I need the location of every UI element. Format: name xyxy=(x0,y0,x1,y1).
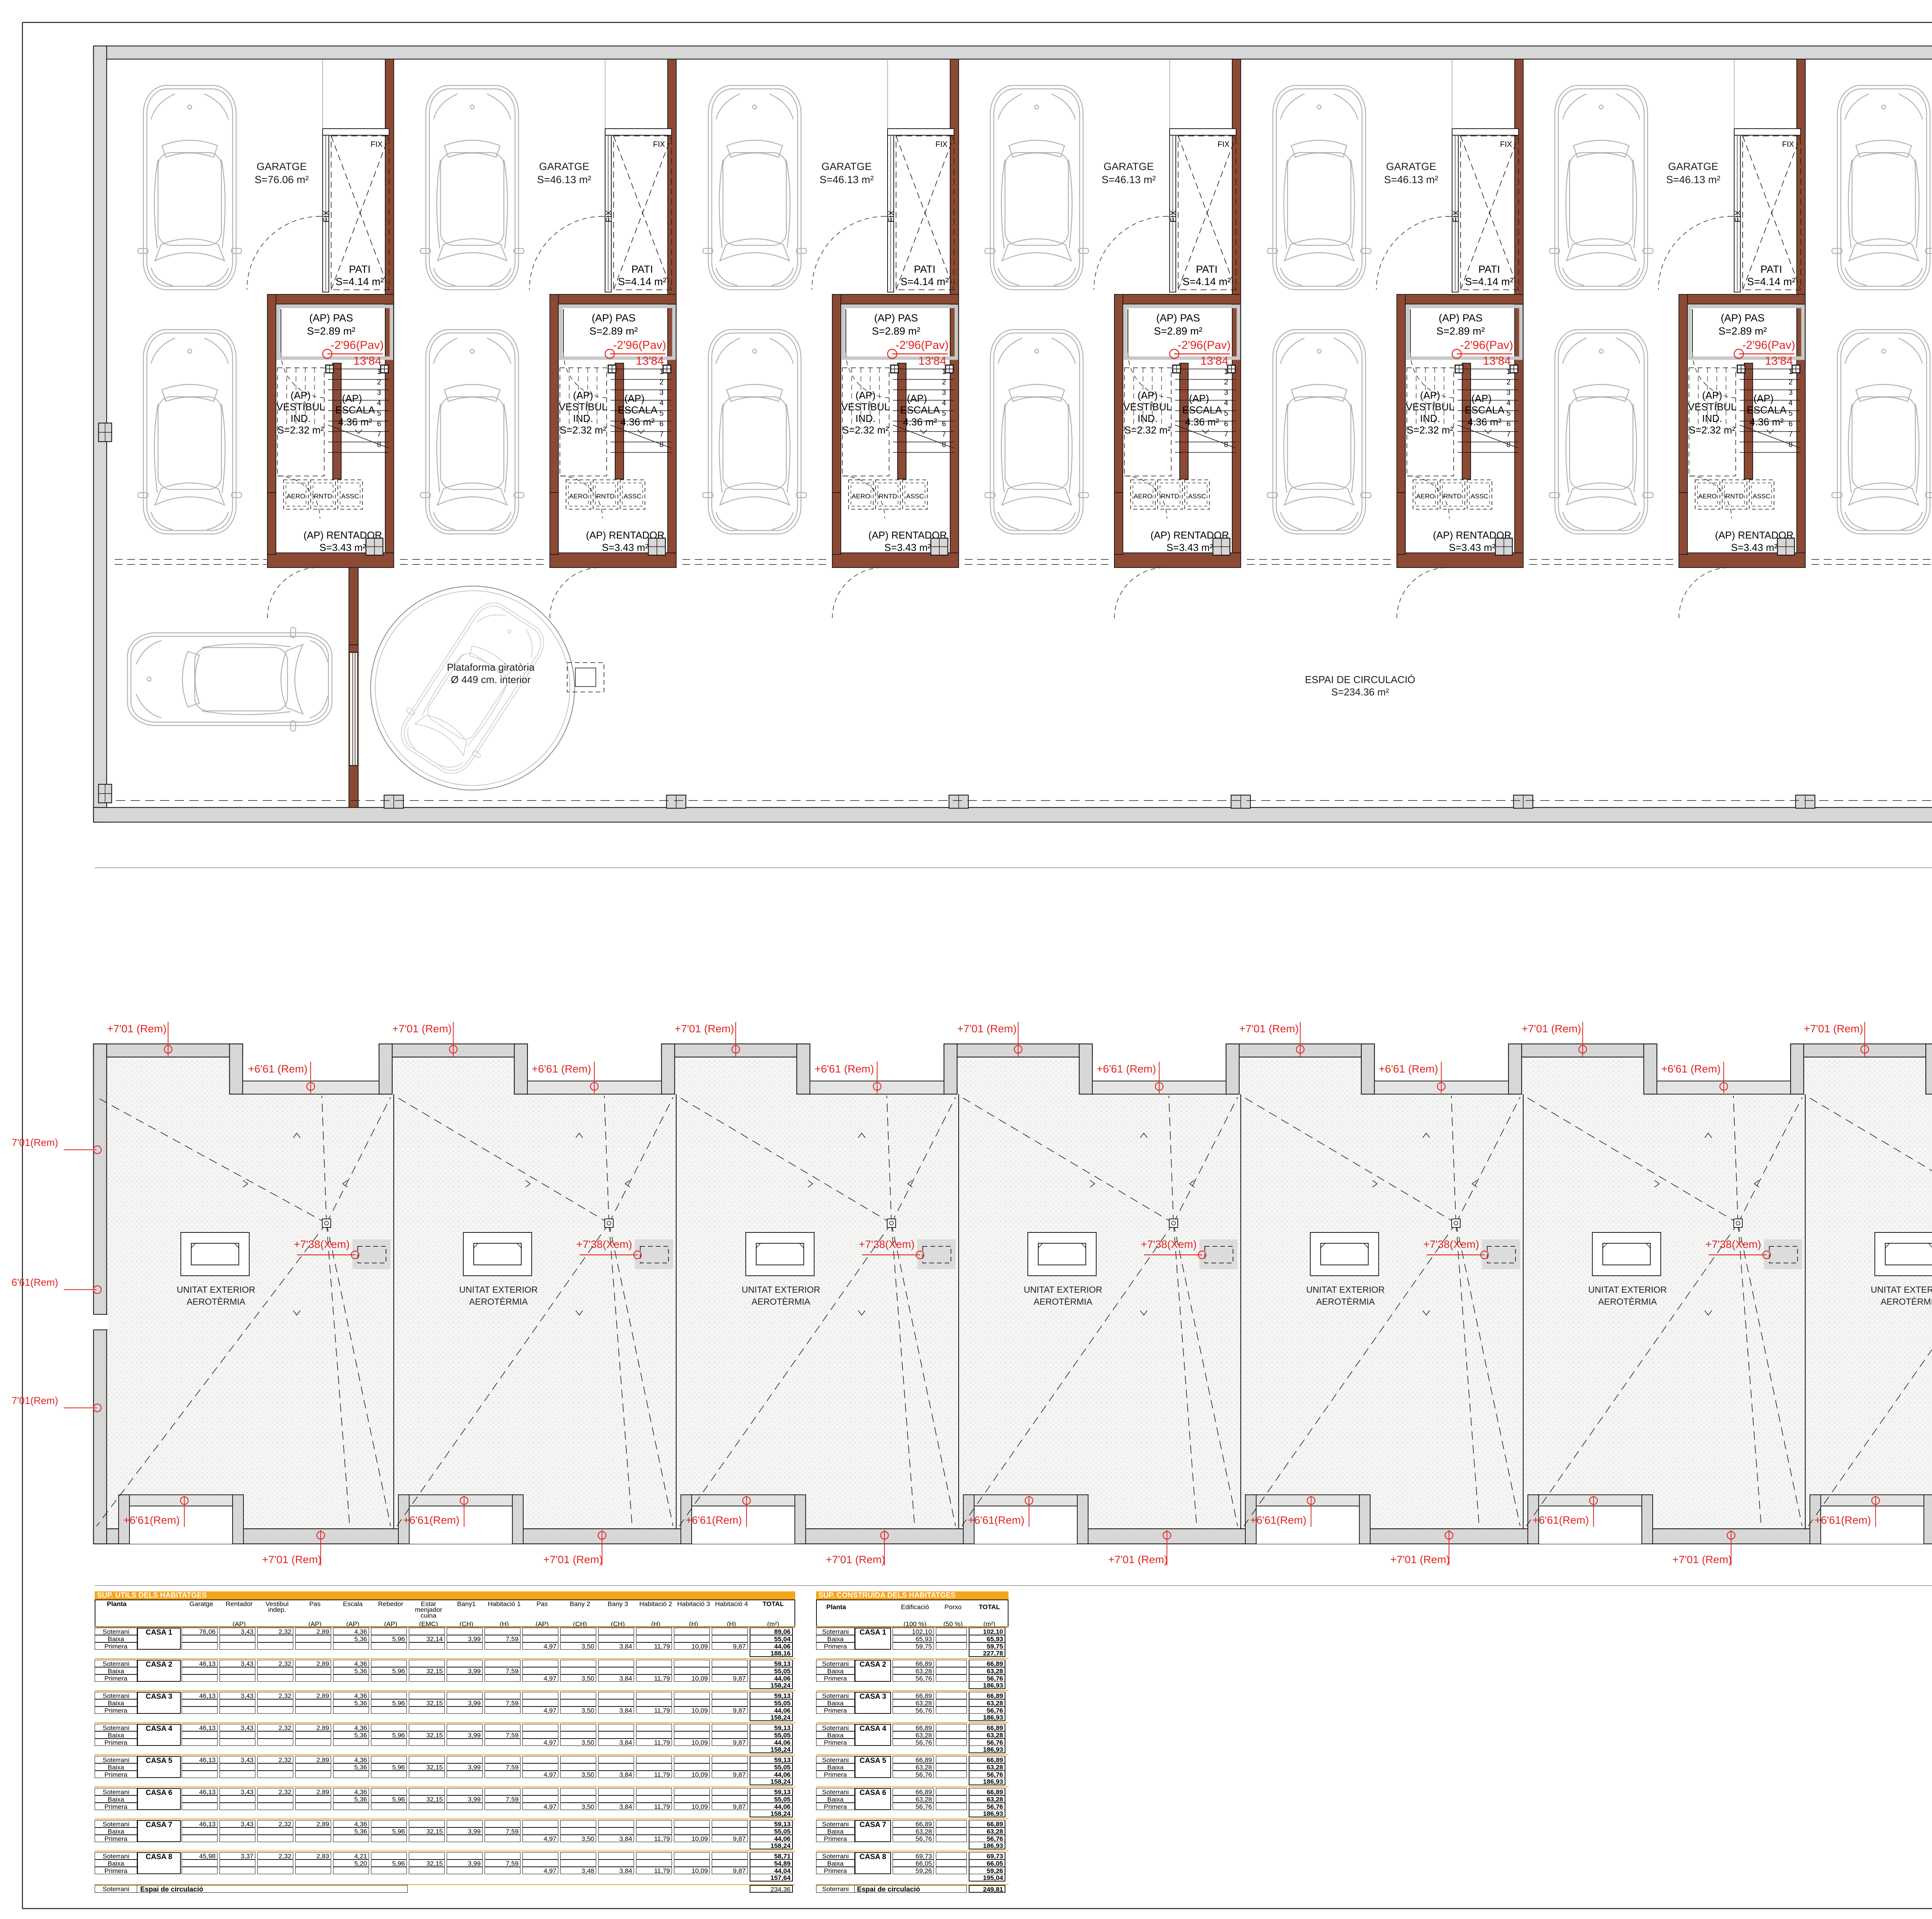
svg-text:AEROTÈRMIA: AEROTÈRMIA xyxy=(1316,1297,1375,1307)
svg-text:S=46.13 m²: S=46.13 m² xyxy=(1102,174,1156,185)
svg-text:+7'01 (Rem): +7'01 (Rem) xyxy=(1804,1023,1863,1035)
svg-text:AEROTÈRMIA: AEROTÈRMIA xyxy=(1881,1297,1932,1307)
svg-text:Ø 449 cm. interior: Ø 449 cm. interior xyxy=(451,674,531,685)
svg-text:+7'01 (Rem): +7'01 (Rem) xyxy=(1108,1554,1168,1565)
svg-text:S=46.13 m²: S=46.13 m² xyxy=(1666,174,1720,185)
svg-text:AEROTÈRMIA: AEROTÈRMIA xyxy=(1598,1297,1657,1307)
svg-text:UNITAT EXTERIOR: UNITAT EXTERIOR xyxy=(177,1285,255,1295)
svg-text:6'61(Rem): 6'61(Rem) xyxy=(12,1277,58,1288)
svg-text:7'01(Rem): 7'01(Rem) xyxy=(12,1137,58,1148)
svg-text:+6'61(Rem): +6'61(Rem) xyxy=(123,1514,180,1526)
svg-text:+7'01 (Rem): +7'01 (Rem) xyxy=(392,1023,452,1035)
svg-text:+7'38(Xem): +7'38(Xem) xyxy=(1423,1238,1479,1250)
svg-text:+7'01 (Rem): +7'01 (Rem) xyxy=(1672,1554,1732,1565)
svg-text:S=234.36 m²: S=234.36 m² xyxy=(1331,686,1389,698)
svg-text:AEROTÈRMIA: AEROTÈRMIA xyxy=(469,1297,528,1307)
svg-text:+7'01 (Rem): +7'01 (Rem) xyxy=(1522,1023,1581,1035)
svg-text:S=76.06 m²: S=76.06 m² xyxy=(255,174,309,185)
svg-text:+7'01 (Rem): +7'01 (Rem) xyxy=(543,1554,603,1565)
svg-text:UNITAT EXTERIOR: UNITAT EXTERIOR xyxy=(1306,1285,1384,1295)
svg-text:+7'01 (Rem): +7'01 (Rem) xyxy=(826,1554,885,1565)
svg-text:+7'01 (Rem): +7'01 (Rem) xyxy=(957,1023,1017,1035)
svg-text:GARATGE: GARATGE xyxy=(539,161,589,172)
svg-text:Plataforma giratòria: Plataforma giratòria xyxy=(447,661,535,673)
svg-text:+7'01 (Rem): +7'01 (Rem) xyxy=(1390,1554,1450,1565)
svg-text:+6'61(Rem): +6'61(Rem) xyxy=(403,1514,459,1526)
svg-text:GARATGE: GARATGE xyxy=(257,161,307,172)
svg-text:+7'38(Xem): +7'38(Xem) xyxy=(859,1238,915,1250)
svg-text:GARATGE: GARATGE xyxy=(821,161,872,172)
svg-text:+6'61 (Rem): +6'61 (Rem) xyxy=(248,1063,308,1075)
svg-text:S=46.13 m²: S=46.13 m² xyxy=(1384,174,1438,185)
svg-text:+7'38(Xem): +7'38(Xem) xyxy=(576,1238,632,1250)
svg-text:UNITAT EXTERIOR: UNITAT EXTERIOR xyxy=(459,1285,537,1295)
svg-text:UNITAT EXTERIOR: UNITAT EXTERIOR xyxy=(1871,1285,1932,1295)
svg-text:GARATGE: GARATGE xyxy=(1386,161,1436,172)
svg-text:+7'01 (Rem): +7'01 (Rem) xyxy=(675,1023,734,1035)
svg-text:+6'61 (Rem): +6'61 (Rem) xyxy=(1379,1063,1438,1075)
svg-text:AEROTÈRMIA: AEROTÈRMIA xyxy=(752,1297,811,1307)
svg-text:+6'61(Rem): +6'61(Rem) xyxy=(1250,1514,1306,1526)
svg-text:+6'61(Rem): +6'61(Rem) xyxy=(968,1514,1024,1526)
svg-text:AEROTÈRMIA: AEROTÈRMIA xyxy=(187,1297,246,1307)
svg-text:GARATGE: GARATGE xyxy=(1104,161,1154,172)
svg-text:+7'01 (Rem): +7'01 (Rem) xyxy=(107,1023,167,1035)
svg-text:+7'38(Xem): +7'38(Xem) xyxy=(1705,1238,1761,1250)
svg-text:ESPAI DE CIRCULACIÓ: ESPAI DE CIRCULACIÓ xyxy=(1305,674,1415,685)
svg-text:GARATGE: GARATGE xyxy=(1668,161,1718,172)
svg-text:S=46.13 m²: S=46.13 m² xyxy=(537,174,591,185)
svg-text:+6'61 (Rem): +6'61 (Rem) xyxy=(1661,1063,1721,1075)
svg-text:S=46.13 m²: S=46.13 m² xyxy=(820,174,874,185)
svg-text:+6'61(Rem): +6'61(Rem) xyxy=(1815,1514,1871,1526)
svg-text:7'01(Rem): 7'01(Rem) xyxy=(12,1395,58,1406)
svg-text:UNITAT EXTERIOR: UNITAT EXTERIOR xyxy=(1588,1285,1667,1295)
svg-text:UNITAT EXTERIOR: UNITAT EXTERIOR xyxy=(1024,1285,1102,1295)
svg-text:+7'01 (Rem): +7'01 (Rem) xyxy=(1239,1023,1299,1035)
svg-text:+6'61 (Rem): +6'61 (Rem) xyxy=(532,1063,591,1075)
svg-text:+6'61(Rem): +6'61(Rem) xyxy=(1532,1514,1589,1526)
svg-text:AEROTÈRMIA: AEROTÈRMIA xyxy=(1034,1297,1093,1307)
svg-text:+6'61 (Rem): +6'61 (Rem) xyxy=(815,1063,874,1075)
svg-text:+6'61 (Rem): +6'61 (Rem) xyxy=(1097,1063,1156,1075)
svg-text:+7'38(Xem): +7'38(Xem) xyxy=(1141,1238,1197,1250)
svg-text:+6'61(Rem): +6'61(Rem) xyxy=(685,1514,742,1526)
svg-text:+7'38(Xem): +7'38(Xem) xyxy=(294,1238,350,1250)
svg-text:+7'01 (Rem): +7'01 (Rem) xyxy=(262,1554,321,1565)
svg-text:UNITAT EXTERIOR: UNITAT EXTERIOR xyxy=(742,1285,820,1295)
